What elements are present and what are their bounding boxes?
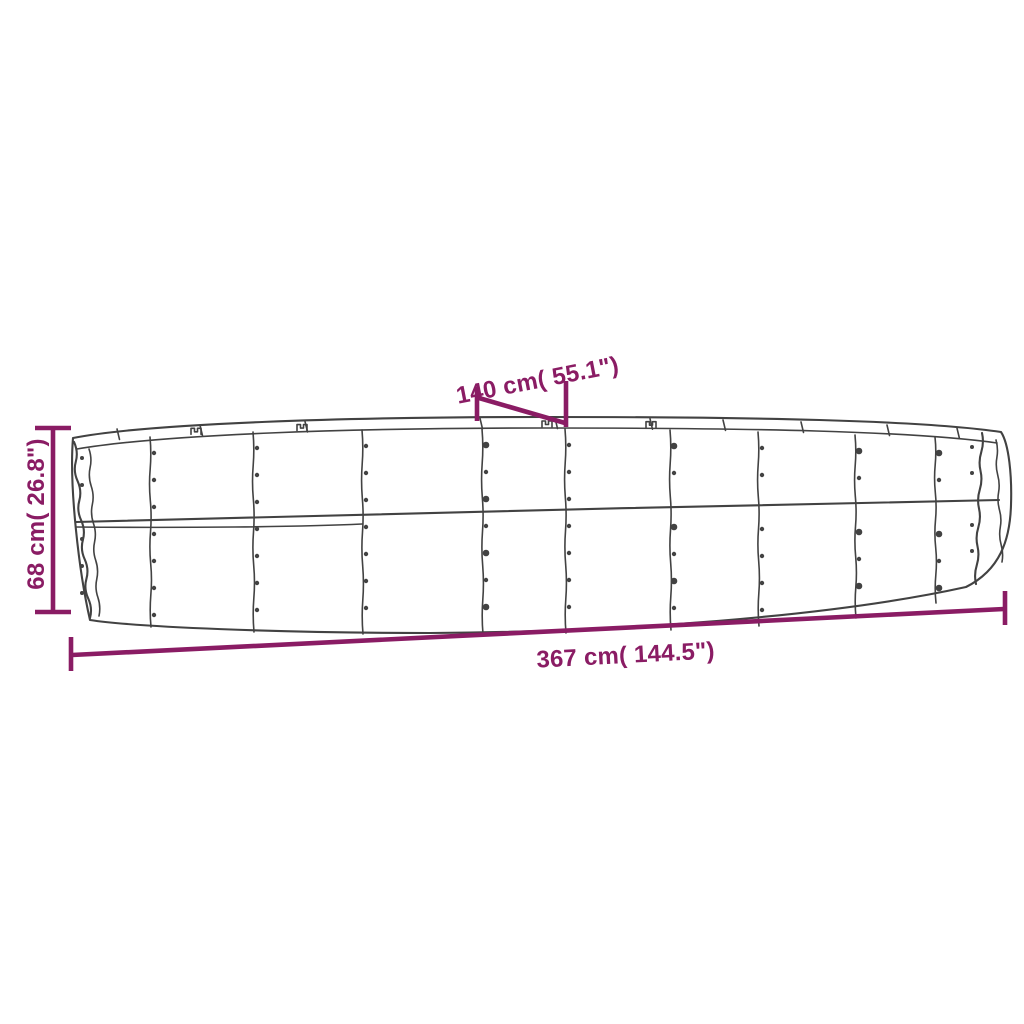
planter-line xyxy=(670,430,672,630)
planter-line xyxy=(758,432,760,626)
rivet-dot xyxy=(970,523,974,527)
rivet-dot xyxy=(483,496,490,503)
planter-line xyxy=(565,429,567,633)
rivet-dot xyxy=(970,549,974,553)
planter-line xyxy=(482,429,484,634)
dim-length-label: 367 cm( 144.5") xyxy=(536,637,716,673)
rivet-dot xyxy=(484,524,488,528)
rivet-dot xyxy=(255,500,259,504)
rivet-dot xyxy=(567,497,571,501)
rivet-dot xyxy=(970,471,974,475)
rivet-dot xyxy=(857,557,861,561)
planter-line xyxy=(76,500,999,522)
rivet-dot xyxy=(970,445,974,449)
planter-line xyxy=(957,428,960,439)
dim-height-label: 68 cm( 26.8") xyxy=(23,438,50,589)
rivet-dot xyxy=(80,564,84,568)
rivet-dot xyxy=(255,554,259,558)
rivet-dot xyxy=(937,478,941,482)
rivet-dot xyxy=(936,585,943,592)
rivet-dot xyxy=(255,608,259,612)
planter-line xyxy=(77,428,997,449)
rivet-dot xyxy=(152,559,156,563)
planter-diagram-svg: 140 cm( 55.1") 68 cm( 26.8") 367 cm( 144… xyxy=(0,0,1024,1024)
rivet-dot xyxy=(672,552,676,556)
rivet-dot xyxy=(567,524,571,528)
rivet-dot xyxy=(255,581,259,585)
rivet-dot xyxy=(567,578,571,582)
rivet-dot xyxy=(483,550,490,557)
rivet-dot xyxy=(255,473,259,477)
rivet-dot xyxy=(152,586,156,590)
planter-line xyxy=(72,417,1011,633)
planter-line xyxy=(362,430,364,634)
product-diagram: 140 cm( 55.1") 68 cm( 26.8") 367 cm( 144… xyxy=(0,0,1024,1024)
rivet-dot xyxy=(80,483,84,487)
rivet-dot xyxy=(856,583,863,590)
rivet-dot xyxy=(255,446,259,450)
rivet-dot xyxy=(672,606,676,610)
rivet-dot xyxy=(567,443,571,447)
rivet-dot xyxy=(152,505,156,509)
rivet-dot xyxy=(152,532,156,536)
rivet-dot xyxy=(760,608,764,612)
rivet-dot xyxy=(671,524,678,531)
rivet-dot xyxy=(364,579,368,583)
planter-line xyxy=(191,428,201,434)
rivet-dot xyxy=(937,559,941,563)
rivet-dot xyxy=(364,471,368,475)
rivet-dot xyxy=(484,470,488,474)
rivet-dot xyxy=(760,446,764,450)
rivet-dot xyxy=(364,444,368,448)
rivet-dot xyxy=(364,498,368,502)
rivet-dot xyxy=(760,554,764,558)
rivet-dot xyxy=(856,448,863,455)
rivet-dot xyxy=(483,604,490,611)
planter-line xyxy=(975,433,983,584)
rivet-dot xyxy=(672,471,676,475)
rivet-dot xyxy=(364,552,368,556)
planter-line xyxy=(89,449,100,616)
planter-line xyxy=(150,437,152,627)
rivet-dot xyxy=(255,527,259,531)
rivet-dot xyxy=(80,591,84,595)
rivet-dot xyxy=(936,531,943,538)
rivet-dot xyxy=(760,473,764,477)
planter-line xyxy=(76,524,362,527)
planter-line xyxy=(935,437,937,603)
rivet-dot xyxy=(671,443,678,450)
rivet-dot xyxy=(567,551,571,555)
rivet-dot xyxy=(760,527,764,531)
rivet-dot xyxy=(567,470,571,474)
planter-line xyxy=(480,418,483,429)
rivet-dot xyxy=(483,442,490,449)
rivet-dot xyxy=(152,478,156,482)
planter-line xyxy=(855,435,857,618)
rivet-dot xyxy=(364,525,368,529)
rivet-dot xyxy=(856,529,863,536)
rivet-dot xyxy=(671,578,678,585)
rivet-dot xyxy=(152,451,156,455)
rivet-dot xyxy=(364,606,368,610)
rivet-dot xyxy=(80,456,84,460)
dim-width-label: 140 cm( 55.1") xyxy=(454,352,621,410)
rivet-dot xyxy=(152,613,156,617)
rivet-dot xyxy=(936,450,943,457)
rivet-dot xyxy=(567,605,571,609)
rivet-dot xyxy=(760,581,764,585)
planter-line xyxy=(253,432,255,632)
planter-drawing xyxy=(72,417,1011,634)
dimension-annotations: 140 cm( 55.1") 68 cm( 26.8") 367 cm( 144… xyxy=(23,352,1005,674)
planter-line xyxy=(542,421,552,427)
rivet-dot xyxy=(857,476,861,480)
rivet-dot xyxy=(80,537,84,541)
rivet-dot xyxy=(484,578,488,582)
